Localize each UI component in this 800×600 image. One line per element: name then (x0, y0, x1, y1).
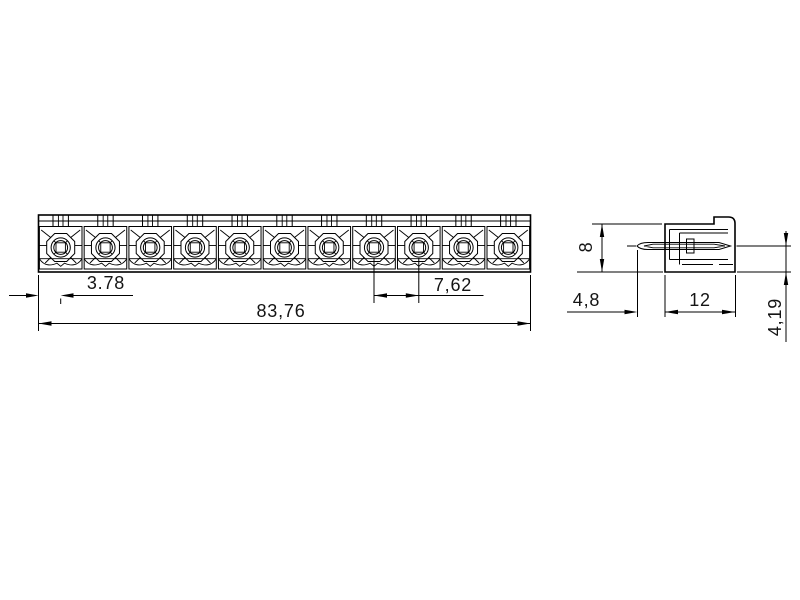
dimension-pitch-label: 7,62 (434, 275, 472, 295)
dimension-edge-offset-label: 3.78 (87, 273, 125, 293)
dimension-pin-protrusion-label: 4,8 (573, 290, 600, 310)
front-view: 3.78 83,76 7,62 (9, 215, 531, 331)
terminal-cell (39, 215, 82, 269)
terminal-cell (487, 215, 530, 269)
dimension-pin-protrusion: 4,8 (567, 250, 678, 317)
dimension-pin-axis-offset: 4,19 (737, 231, 791, 342)
terminal-cell (308, 215, 351, 269)
side-view-pin (627, 239, 791, 253)
dimension-height: 8 (576, 224, 663, 272)
terminal-cell (129, 215, 172, 269)
dimension-edge-offset: 3.78 (9, 273, 133, 331)
dimension-pin-axis-offset-label: 4,19 (765, 298, 785, 336)
terminal-cell (263, 215, 306, 269)
terminal-cell (84, 215, 127, 269)
terminal-cell (174, 215, 217, 269)
dimension-height-label: 8 (576, 242, 596, 253)
front-view-housing (39, 215, 531, 272)
terminal-cell (442, 215, 485, 269)
front-view-cells (39, 215, 529, 269)
dimension-depth-label: 12 (689, 290, 711, 310)
drawing-canvas: 3.78 83,76 7,62 (0, 0, 800, 600)
dimension-overall-width-label: 83,76 (256, 301, 305, 321)
drawing-svg: 3.78 83,76 7,62 (0, 0, 800, 600)
side-view: 8 4,8 12 4,19 (567, 217, 791, 342)
terminal-cell (218, 215, 261, 269)
